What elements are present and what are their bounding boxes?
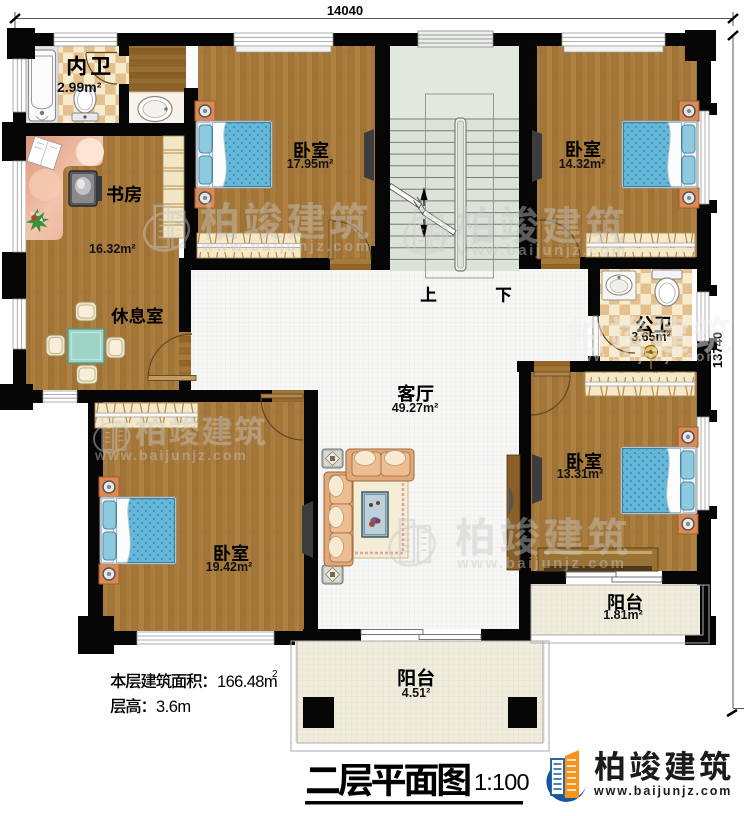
svg-text:4.51²: 4.51² [402, 686, 431, 700]
svg-text:www.baijunjz.com: www.baijunjz.com [593, 784, 732, 798]
svg-text:16.32m²: 16.32m² [89, 242, 136, 256]
svg-text:1:100: 1:100 [474, 769, 530, 795]
svg-text:14.32m²: 14.32m² [559, 157, 606, 171]
svg-text:49.27m²: 49.27m² [392, 401, 439, 415]
svg-text:www.baijunjz.com: www.baijunjz.com [201, 238, 371, 255]
svg-text:13.31m²: 13.31m² [557, 467, 604, 481]
svg-text:166.48m: 166.48m [217, 673, 277, 691]
svg-text:www.baijunjz.com: www.baijunjz.com [94, 447, 248, 463]
svg-text:17.95m²: 17.95m² [287, 157, 334, 171]
svg-text:14040: 14040 [327, 3, 363, 18]
svg-text:2: 2 [272, 669, 278, 680]
svg-text:www.baijunjz.com: www.baijunjz.com [567, 348, 721, 364]
svg-text:19.42m²: 19.42m² [206, 560, 253, 574]
svg-text:3.6m: 3.6m [156, 698, 191, 716]
svg-text:2.99m²: 2.99m² [57, 79, 102, 95]
svg-text:www.baijunjz.com: www.baijunjz.com [456, 555, 626, 572]
svg-text:www.baijunjz.com: www.baijunjz.com [457, 242, 627, 259]
svg-text:1.81m²: 1.81m² [603, 608, 643, 622]
